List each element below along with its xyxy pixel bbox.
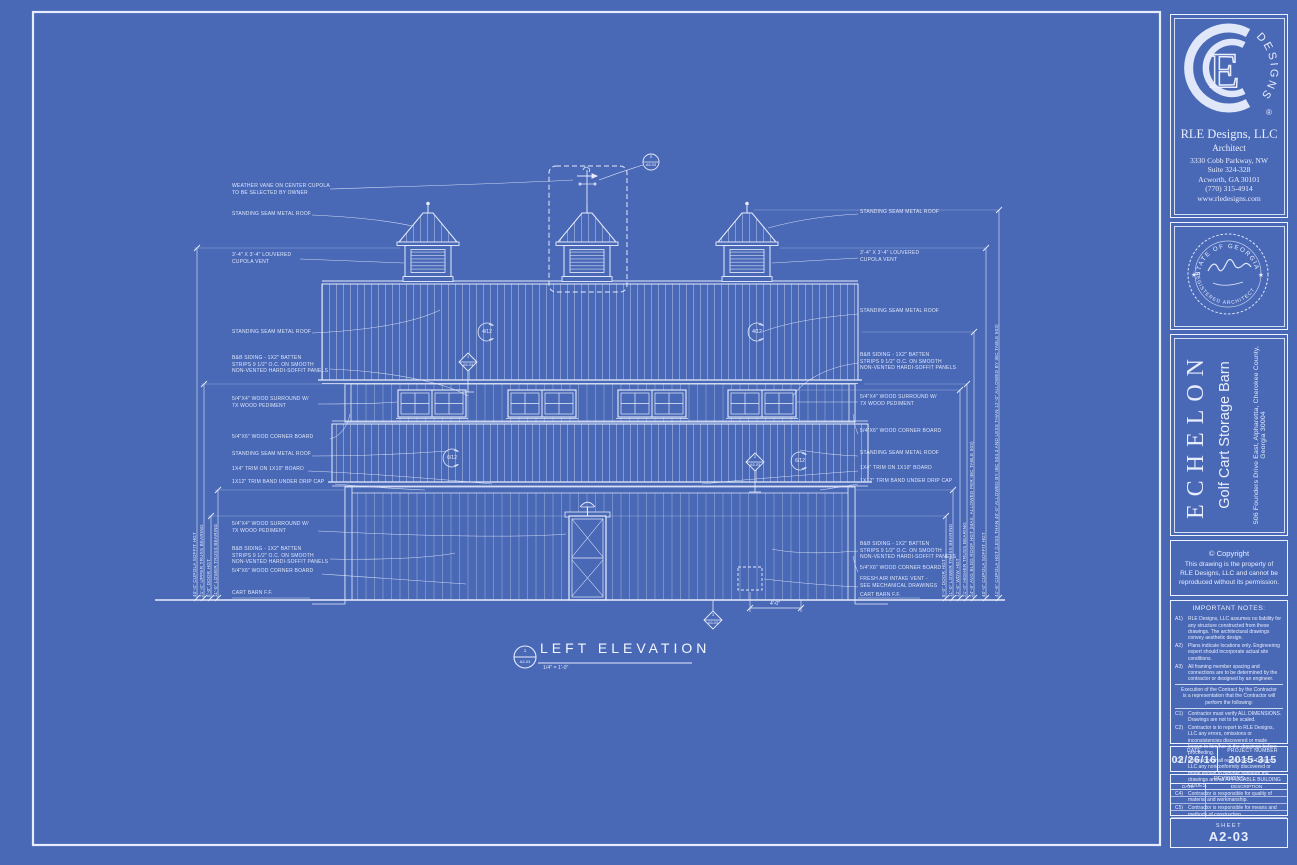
callout-number: 5 xyxy=(638,154,664,161)
blueprint-sheet: WEATHER VANE ON CENTER CUPOLA TO BE SELE… xyxy=(0,0,1297,865)
dimension-label: 21'-0" HIGHER TRUSS BEARING xyxy=(962,522,967,597)
firm-role: Architect xyxy=(1171,143,1287,154)
georgia-seal-icon: STATE OF GEORGIA REGISTERED ARCHITECT ★ … xyxy=(1171,223,1285,325)
svg-text:E: E xyxy=(1209,42,1240,98)
annotation-label: 1x4" TRIM ON 1x10" BOARD xyxy=(860,465,932,472)
annotation-label: STANDING SEAM METAL ROOF xyxy=(860,308,939,315)
annotation-label: 5/4"x6" WOOD CORNER BOARD xyxy=(232,434,313,441)
revision-row xyxy=(1171,804,1287,811)
dimension-label: 8'-0" DOOR HGT xyxy=(206,559,211,597)
callout-sheet: A5-03 xyxy=(742,462,768,469)
annotation-label: CART BARN F.F. xyxy=(232,590,273,597)
annotation-label: 5/4"x6" WOOD CORNER BOARD xyxy=(860,428,941,435)
firm-phone: (770) 315-4914 xyxy=(1171,184,1287,193)
note-item: A1)RLE Designs, LLC assumes no liability… xyxy=(1175,616,1283,641)
project-name: ECHELON xyxy=(1183,337,1210,533)
project-number-value: 2015-315 xyxy=(1228,754,1276,766)
view-scale: 1/4" = 1'-0" xyxy=(543,665,568,671)
callout-number: 1 xyxy=(455,354,481,361)
callout-number: 2 xyxy=(742,454,768,461)
rle-logo-icon: E DESIGNS ® xyxy=(1172,17,1286,127)
copyright-line: RLE Designs, LLC and cannot be xyxy=(1171,570,1287,579)
pitch-label: 4/12 xyxy=(482,329,492,335)
firm-box: E DESIGNS ® RLE Designs, LLC Architect 3… xyxy=(1170,14,1288,218)
annotation-label: WEATHER VANE ON CENTER CUPOLA TO BE SELE… xyxy=(232,183,330,196)
elevation-linework xyxy=(0,0,1297,865)
annotation-label: 5/4"x6" WOOD CORNER BOARD xyxy=(232,568,313,575)
annotation-label: B&B SIDING - 1x2" BATTEN STRIPS 9 1/2" O… xyxy=(860,541,956,561)
annotation-label: FRESH AIR INTAKE VENT - SEE MECHANICAL D… xyxy=(860,576,937,589)
svg-text:★: ★ xyxy=(1258,271,1264,279)
view-callout-sheet: A2-03 xyxy=(514,659,536,664)
annotation-label: 3'-4" x 3'-4" LOUVERED CUPOLA VENT xyxy=(232,252,291,265)
annotation-label: 5/4"x4" WOOD SURROUND W/ 7x WOOD PEDIMEN… xyxy=(860,394,937,407)
dimension-label: 21'-0" UPPER TRUSS BEARING xyxy=(199,524,204,597)
project-address: 506 Founders Drive East, Alpharetta, Che… xyxy=(1253,337,1267,533)
annotation-label: 5/4"x6" WOOD CORNER BOARD xyxy=(860,565,941,572)
annotation-label: B&B SIDING - 1x2" BATTEN STRIPS 9 1/2" O… xyxy=(232,546,328,566)
dimension-label: 40'-0" CUPOLA SOFFIT HGT xyxy=(981,532,986,597)
callout-sheet: A5-03 xyxy=(638,162,664,169)
svg-text:STATE OF GEORGIA: STATE OF GEORGIA xyxy=(1195,243,1261,276)
dimension-label: 40'-0" CUPOLA SOFFIT HGT xyxy=(192,532,197,597)
firm-name: RLE Designs, LLC xyxy=(1171,127,1287,143)
barn-door xyxy=(565,512,610,600)
annotation-label: 5/4"x4" WOOD SURROUND W/ 7x WOOD PEDIMEN… xyxy=(232,396,309,409)
annotation-label: B&B SIDING - 1x2" BATTEN STRIPS 9 1/2" O… xyxy=(232,355,328,375)
dimension-label: 41'-6" CUPOLA HGT (LESS THAN 40'-0" ALLO… xyxy=(994,324,999,597)
upper-roof xyxy=(318,281,862,384)
notes-heading: IMPORTANT NOTES: xyxy=(1175,605,1283,613)
svg-text:★: ★ xyxy=(1191,271,1197,279)
date-value: 02/26/16 xyxy=(1172,754,1217,766)
svg-text:DESIGNS: DESIGNS xyxy=(1254,31,1280,103)
date-project-box: DATE 02/26/16 PROJECT NUMBER 2015-315 xyxy=(1170,746,1288,772)
dimension-label: 11'-0" LOWER TRUSS BEARING xyxy=(213,524,218,597)
revision-row xyxy=(1171,797,1287,804)
note-item: C1)Contractor must verify ALL DIMENSIONS… xyxy=(1175,711,1283,723)
view-title: LEFT ELEVATION xyxy=(540,640,710,656)
annotation-label: STANDING SEAM METAL ROOF xyxy=(232,211,311,218)
cupola-left xyxy=(397,202,459,281)
revision-row xyxy=(1171,790,1287,797)
pitch-label: 6/12 xyxy=(795,458,805,464)
note-item: A3)All framing member spacing and connec… xyxy=(1175,664,1283,683)
dimension-label: 11'-0" LOWER TRUSS BEARING xyxy=(948,524,953,597)
callout-sheet: A5-03 xyxy=(700,620,726,627)
cupola-right xyxy=(716,202,778,281)
annotation-label: 1x12" TRIM BAND UNDER DRIP CAP xyxy=(232,479,324,486)
annotation-label: 3'-4" x 3'-4" LOUVERED CUPOLA VENT xyxy=(860,250,919,263)
svg-text:®: ® xyxy=(1266,108,1272,117)
firm-website: www.rledesigns.com xyxy=(1171,194,1287,203)
firm-address-line: 3330 Cobb Parkway, NW xyxy=(1171,156,1287,165)
sheet-number: A2-03 xyxy=(1209,829,1249,844)
grade-line xyxy=(155,600,1005,604)
copyright-heading: © Copyright xyxy=(1171,549,1287,559)
annotation-label: STANDING SEAM METAL ROOF xyxy=(232,329,311,336)
firm-address-line: Suite 324-328 xyxy=(1171,165,1287,174)
annotation-label: 1x4" TRIM ON 1x10" BOARD xyxy=(232,466,304,473)
annotation-label: 1x12" TRIM BAND UNDER DRIP CAP xyxy=(860,478,952,485)
copyright-line: reproduced without its permission. xyxy=(1171,579,1287,588)
firm-address-line: Acworth, GA 30101 xyxy=(1171,175,1287,184)
sheet-box: SHEET A2-03 xyxy=(1170,818,1288,848)
project-box: ECHELON Golf Cart Storage Barn 506 Found… xyxy=(1170,334,1288,536)
callout-sheet: A5-03 xyxy=(455,362,481,369)
seal-box: STATE OF GEORGIA REGISTERED ARCHITECT ★ … xyxy=(1170,222,1288,330)
pitch-label: 6/12 xyxy=(447,455,457,461)
annotation-label: STANDING SEAM METAL ROOF xyxy=(232,451,311,458)
revision-row xyxy=(1171,811,1287,818)
project-type: Golf Cart Storage Barn xyxy=(1217,337,1233,533)
annotation-label: CART BARN F.F. xyxy=(860,592,901,599)
annotation-label: STANDING SEAM METAL ROOF xyxy=(860,209,939,216)
vent-dim-label: 4'-0" xyxy=(770,601,780,607)
dimension-label: 12'-6" WDW HGT xyxy=(955,558,960,597)
annotation-label: B&B SIDING - 1x2" BATTEN STRIPS 9 1/2" O… xyxy=(860,352,956,372)
pitch-label: 4/12 xyxy=(752,329,762,335)
callout-number: 3 xyxy=(700,612,726,619)
annotation-label: STANDING SEAM METAL ROOF xyxy=(860,450,939,457)
notes-box: IMPORTANT NOTES: A1)RLE Designs, LLC ass… xyxy=(1170,600,1288,744)
copyright-box: © Copyright This drawing is the property… xyxy=(1170,540,1288,596)
revisions-box: REVISIONS DATE DESCRIPTION xyxy=(1170,774,1288,816)
view-callout-number: 1 xyxy=(514,648,536,653)
note-item: A2)Plans indicate locations only. Engine… xyxy=(1175,643,1283,662)
copyright-line: This drawing is the property of xyxy=(1171,561,1287,570)
annotation-label: 5/4"x4" WOOD SURROUND W/ 7x WOOD PEDIMEN… xyxy=(232,521,309,534)
execution-note: Execution of the Contract by the Contrac… xyxy=(1175,684,1283,709)
dimension-label: 24'-9" AVG BLDG ROOF HGT (MAX. ALLOWED P… xyxy=(969,441,974,597)
dimension-label: 8'-0" DOOR HGT xyxy=(941,559,946,597)
revisions-heading: REVISIONS xyxy=(1171,775,1287,784)
cupola-center xyxy=(556,205,618,282)
